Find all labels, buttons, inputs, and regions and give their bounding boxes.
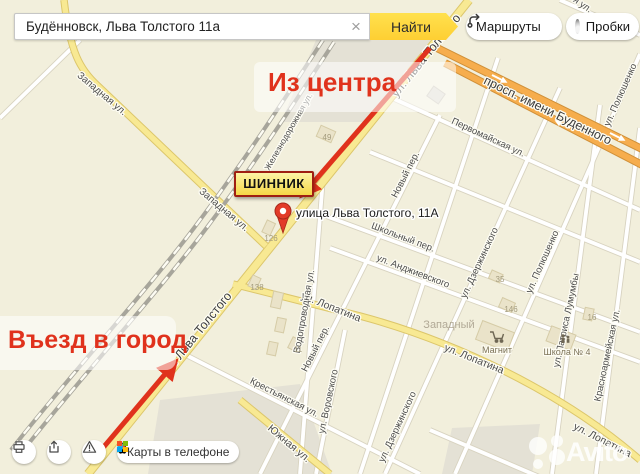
annotation-entrance-text: Въезд в город xyxy=(8,326,187,354)
shinnik-callout: ШИННИК xyxy=(234,171,314,197)
search-input[interactable] xyxy=(15,19,343,34)
annotation-from-center-text: Из центра xyxy=(268,67,396,97)
share-icon xyxy=(47,440,61,454)
annotation-entrance: Въезд в город xyxy=(0,316,176,370)
house-number: 146 xyxy=(504,305,518,314)
traffic-button-label: Пробки xyxy=(586,19,630,34)
house-number: 138 xyxy=(250,283,264,292)
poi-label: Школа № 4 xyxy=(543,347,590,357)
avito-watermark-text: Avito xyxy=(566,437,628,468)
clear-search-icon[interactable]: × xyxy=(343,14,369,39)
avito-logo-circle xyxy=(529,437,547,455)
share-button[interactable] xyxy=(47,440,71,464)
search-box[interactable]: × xyxy=(14,13,370,40)
maps-on-phone-link[interactable]: Карты в телефоне xyxy=(117,441,239,463)
pin-address-label: улица Льва Толстого, 11А xyxy=(296,206,438,220)
house-number: 49 xyxy=(323,133,332,142)
annotation-from-center: Из центра xyxy=(254,62,456,112)
maps-on-phone-label: Карты в телефоне xyxy=(127,445,229,459)
printer-icon xyxy=(12,440,26,454)
map-app-window: Западная ул. Западная ул. Железнодорожна… xyxy=(0,0,640,474)
house-number: 16 xyxy=(588,313,597,322)
warning-triangle-icon xyxy=(82,440,97,454)
avito-logo-circle xyxy=(551,435,563,447)
poi-label: Магнит xyxy=(482,345,512,355)
traffic-button[interactable]: Пробки xyxy=(566,13,639,40)
route-icon xyxy=(466,13,482,29)
traffic-ball-icon xyxy=(575,19,580,34)
avito-logo-circle xyxy=(533,459,543,469)
avito-logo-circle xyxy=(549,449,565,465)
routes-button[interactable]: Маршруты xyxy=(466,13,562,40)
routes-button-label: Маршруты xyxy=(476,19,541,34)
print-button[interactable] xyxy=(12,440,36,464)
house-number: 35 xyxy=(496,275,505,284)
find-button[interactable]: Найти xyxy=(370,13,458,40)
windows-icon[interactable] xyxy=(117,441,128,452)
house-number: 126 xyxy=(264,234,278,243)
house-number: 11 xyxy=(294,345,303,354)
report-error-button[interactable] xyxy=(82,440,106,464)
district-label: Западный xyxy=(423,319,474,331)
